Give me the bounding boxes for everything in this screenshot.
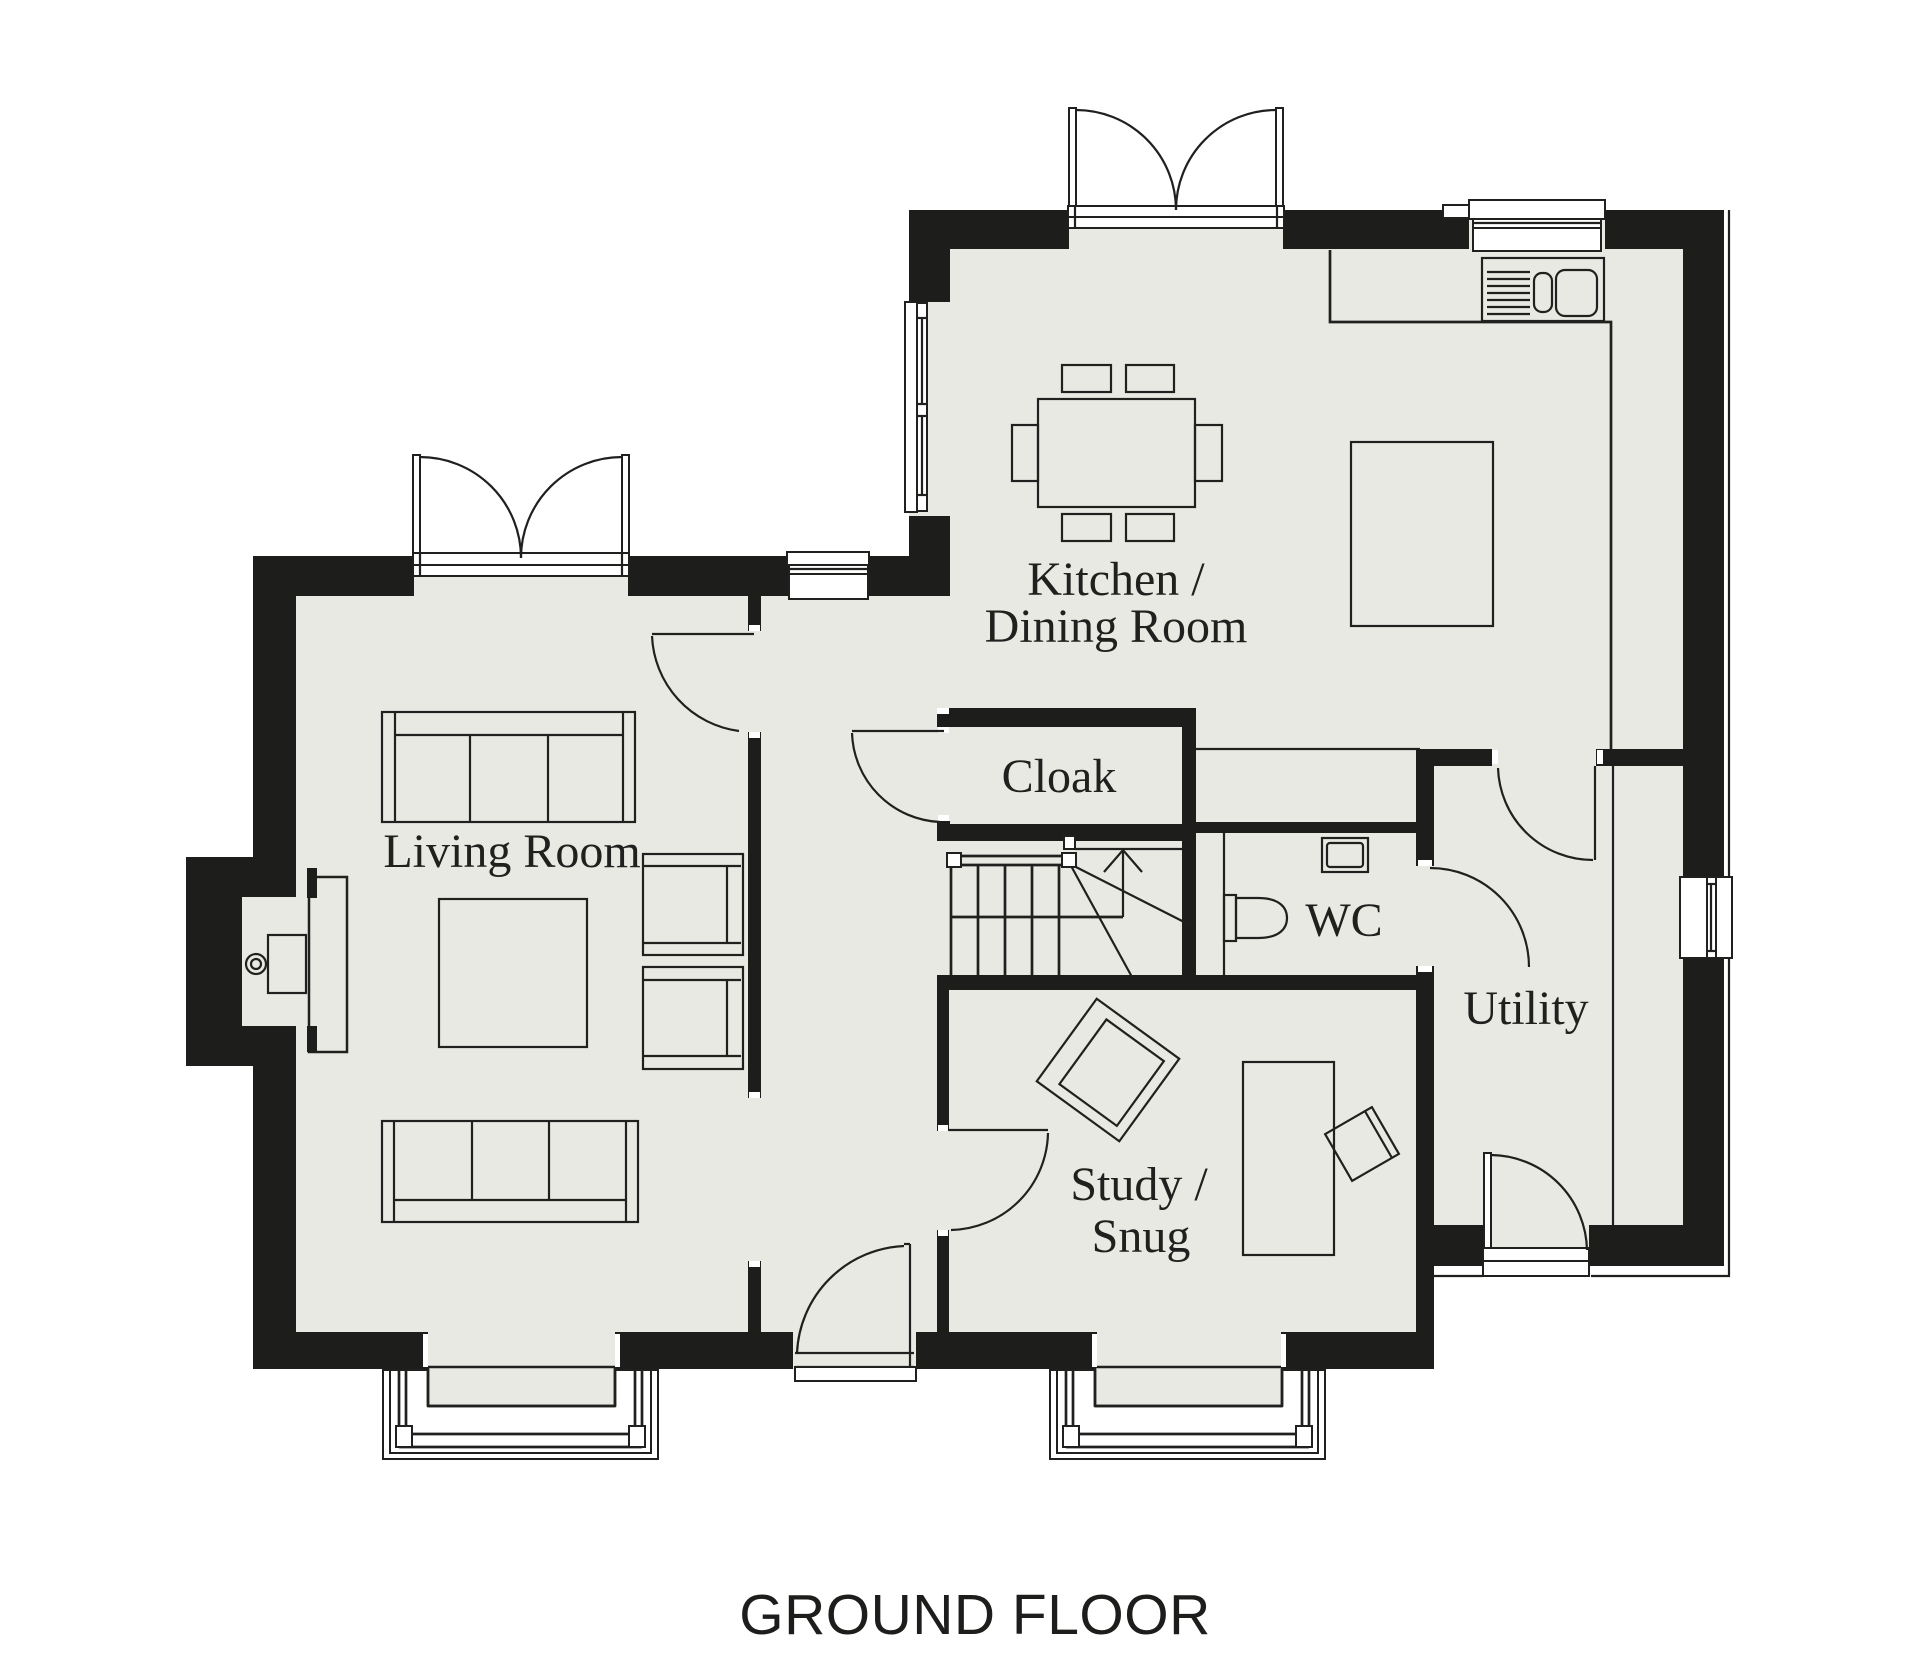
svg-text:Living Room: Living Room bbox=[383, 825, 640, 878]
svg-text:Snug: Snug bbox=[1092, 1210, 1191, 1263]
svg-text:GROUND FLOOR: GROUND FLOOR bbox=[739, 1583, 1211, 1647]
svg-text:Study /: Study / bbox=[1070, 1158, 1208, 1211]
svg-text:Utility: Utility bbox=[1463, 982, 1588, 1035]
svg-text:WC: WC bbox=[1305, 894, 1382, 947]
svg-text:Cloak: Cloak bbox=[1002, 750, 1117, 803]
svg-text:Dining Room: Dining Room bbox=[985, 600, 1248, 653]
svg-text:Kitchen /: Kitchen / bbox=[1027, 553, 1205, 606]
